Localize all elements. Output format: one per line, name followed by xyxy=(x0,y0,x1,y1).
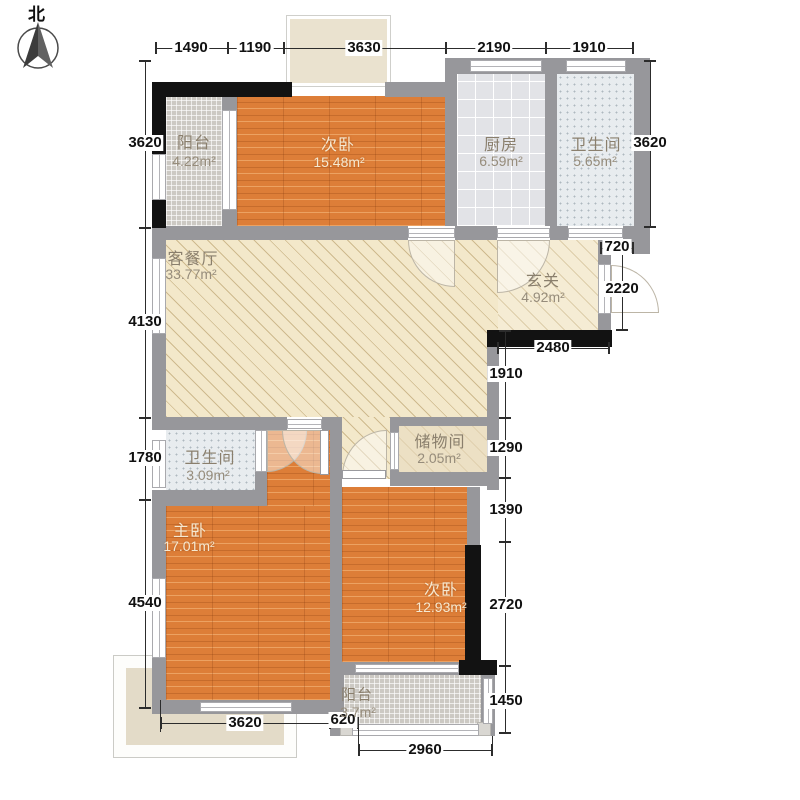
dim-tick xyxy=(499,541,511,543)
dimension-label: 2220 xyxy=(603,281,640,297)
dim-tick xyxy=(139,707,151,709)
dimension-line xyxy=(505,330,506,733)
room-floor-bedroom-bottom xyxy=(342,487,467,662)
window xyxy=(355,664,459,673)
dim-tick xyxy=(139,227,151,229)
room-label-storage: 储物间 xyxy=(414,428,465,452)
wall xyxy=(390,472,499,486)
wall-black xyxy=(459,660,497,675)
room-area-bathroom-top: 5.65m² xyxy=(573,153,617,169)
room-area-storage: 2.05m² xyxy=(417,450,461,466)
wall xyxy=(455,226,497,240)
dimension-label: 1190 xyxy=(237,40,274,56)
room-area-balcony-bottom: 3.7m² xyxy=(340,704,376,720)
wall-black xyxy=(152,198,166,228)
dim-tick xyxy=(358,744,360,756)
window xyxy=(568,228,623,238)
wall xyxy=(222,210,237,226)
wall xyxy=(445,74,457,226)
room-area-master-bedroom: 17.01m² xyxy=(163,538,214,554)
room-label-bedroom-bottom: 次卧 xyxy=(424,576,458,600)
dim-tick xyxy=(608,342,610,354)
dimension-label: 1290 xyxy=(487,440,524,456)
room-area-living: 33.77m² xyxy=(165,266,216,282)
dimension-label: 2960 xyxy=(406,742,443,758)
door-leaf-master-bedroom xyxy=(320,430,329,475)
wall xyxy=(550,226,568,240)
dimension-label: 3620 xyxy=(126,135,163,151)
door-opening xyxy=(497,228,550,238)
dim-tick xyxy=(155,42,157,54)
room-area-bathroom-mid: 3.09m² xyxy=(186,467,230,483)
room-label-kitchen: 厨房 xyxy=(484,131,518,155)
wall xyxy=(467,487,480,545)
room-label-balcony-top: 阳台 xyxy=(177,129,211,153)
compass: 北 xyxy=(6,2,70,78)
room-label-bedroom-top: 次卧 xyxy=(321,131,355,155)
door-leaf-bedroom-bottom xyxy=(342,470,386,479)
wall xyxy=(634,58,650,254)
dimension-label: 3620 xyxy=(226,715,263,731)
dim-tick xyxy=(632,42,634,54)
balcony-sliding-door xyxy=(222,110,237,210)
dimension-label: 1450 xyxy=(487,693,524,709)
room-area-bedroom-bottom: 12.93m² xyxy=(415,599,466,615)
dim-tick xyxy=(445,42,447,54)
door-opening xyxy=(408,228,455,238)
wall xyxy=(330,417,342,487)
wall xyxy=(222,96,237,110)
dim-tick xyxy=(139,499,151,501)
wall-black xyxy=(152,82,292,97)
dimension-label: 720 xyxy=(602,239,631,255)
dim-tick xyxy=(491,744,493,756)
dim-tick xyxy=(139,60,151,62)
dim-tick xyxy=(545,42,547,54)
dimension-label: 2720 xyxy=(487,597,524,613)
room-label-entry: 玄关 xyxy=(526,267,560,291)
door-opening xyxy=(390,432,399,470)
dimension-label: 1780 xyxy=(126,450,163,466)
room-label-balcony-bottom: 阳台 xyxy=(341,684,373,705)
dim-tick xyxy=(499,330,511,332)
room-label-bathroom-mid: 卫生间 xyxy=(184,444,235,468)
door-opening xyxy=(287,419,322,429)
dim-tick xyxy=(160,717,162,729)
dimension-label: 2190 xyxy=(475,40,512,56)
room-area-kitchen: 6.59m² xyxy=(479,153,523,169)
dimension-label: 1390 xyxy=(487,502,524,518)
dim-tick xyxy=(644,226,656,228)
dimension-label: 4130 xyxy=(126,314,163,330)
dim-tick xyxy=(283,42,285,54)
dimension-label: 1910 xyxy=(570,40,607,56)
window xyxy=(470,60,542,72)
window xyxy=(152,578,166,658)
window xyxy=(152,154,166,200)
dimension-label: 3630 xyxy=(345,40,382,56)
wall-black xyxy=(465,545,481,675)
window xyxy=(352,724,479,736)
balcony-corner-post xyxy=(477,722,491,736)
dim-tick xyxy=(499,417,511,419)
dim-tick xyxy=(139,417,151,419)
room-area-bedroom-top: 15.48m² xyxy=(313,154,364,170)
wall xyxy=(152,226,408,240)
window xyxy=(200,702,292,712)
dimension-label: 1910 xyxy=(487,366,524,382)
dim-tick xyxy=(227,42,229,54)
dim-tick xyxy=(616,329,628,331)
dim-tick xyxy=(632,242,634,254)
door-opening xyxy=(255,430,267,472)
dim-tick xyxy=(497,342,499,354)
dimension-label: 4540 xyxy=(126,595,163,611)
wall xyxy=(545,74,557,226)
dimension-label: 3620 xyxy=(631,135,668,151)
wall xyxy=(390,417,499,426)
dimension-label: 2480 xyxy=(534,340,571,356)
dim-tick xyxy=(499,477,511,479)
wall xyxy=(152,490,267,506)
north-label: 北 xyxy=(28,0,45,25)
room-label-bathroom-top: 卫生间 xyxy=(570,131,621,155)
dimension-label: 1490 xyxy=(172,40,209,56)
room-area-entry: 4.92m² xyxy=(521,289,565,305)
floor-plan-canvas: 北 xyxy=(0,0,800,800)
dim-tick xyxy=(499,665,511,667)
dim-tick xyxy=(644,60,656,62)
dim-tick xyxy=(499,732,511,734)
window xyxy=(566,60,626,72)
room-area-balcony-top: 4.22m² xyxy=(172,153,216,169)
